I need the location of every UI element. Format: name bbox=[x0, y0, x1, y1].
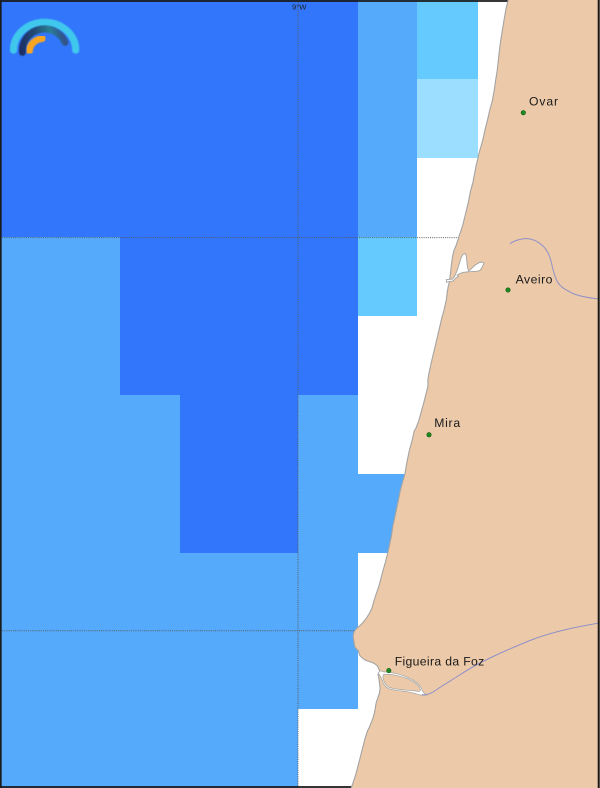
svg-text:Ovar: Ovar bbox=[529, 94, 559, 108]
svg-text:Aveiro: Aveiro bbox=[516, 272, 553, 286]
svg-text:Figueira da Foz: Figueira da Foz bbox=[395, 655, 485, 669]
svg-text:9°W: 9°W bbox=[292, 2, 307, 11]
svg-text:Mira: Mira bbox=[434, 416, 461, 430]
